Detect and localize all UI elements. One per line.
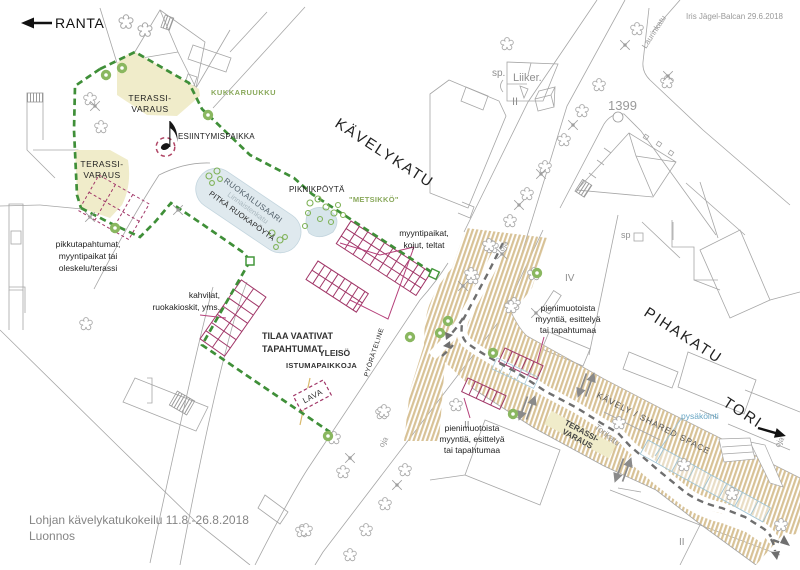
svg-text:KUKKARUUKKU: KUKKARUUKKU — [211, 88, 276, 97]
svg-text:II: II — [679, 537, 685, 548]
svg-text:Lohjan kävelykatukokeilu 11.8.: Lohjan kävelykatukokeilu 11.8.-26.8.2018 — [29, 513, 249, 527]
svg-text:tai tapahtumaa: tai tapahtumaa — [540, 325, 597, 335]
svg-text:myyntipaikat tai: myyntipaikat tai — [59, 251, 118, 261]
svg-text:1399: 1399 — [608, 98, 637, 113]
svg-text:ISTUMAPAIKKOJA: ISTUMAPAIKKOJA — [286, 361, 357, 370]
svg-text:tai tapahtumaa: tai tapahtumaa — [444, 445, 501, 455]
svg-text:pienimuotoista: pienimuotoista — [541, 303, 596, 313]
svg-text:myyntiä, esittelyä: myyntiä, esittelyä — [535, 314, 600, 324]
svg-text:TILAA VAATIVAT: TILAA VAATIVAT — [262, 331, 333, 341]
svg-text:YLEISÖ: YLEISÖ — [319, 348, 351, 358]
svg-text:Iris Jägel-Balcan 29.6.2018: Iris Jägel-Balcan 29.6.2018 — [686, 12, 784, 21]
svg-text:sp: sp — [621, 230, 631, 240]
svg-text:VARAUS: VARAUS — [83, 170, 120, 180]
svg-text:kojut, teltat: kojut, teltat — [403, 240, 445, 250]
svg-text:Liiker.: Liiker. — [513, 72, 542, 84]
svg-text:pysäköinti: pysäköinti — [681, 411, 719, 421]
svg-text:kahvilat,: kahvilat, — [189, 290, 220, 300]
svg-text:"METSIKKÖ": "METSIKKÖ" — [349, 195, 399, 204]
svg-text:TERASSI-: TERASSI- — [80, 159, 123, 169]
svg-text:pienimuotoista: pienimuotoista — [445, 423, 500, 433]
svg-text:pikkutapahtumat,: pikkutapahtumat, — [56, 239, 121, 249]
svg-text:ESIINTYMISPAIKKA: ESIINTYMISPAIKKA — [178, 132, 255, 141]
svg-text:PIKNIKPÖYTÄ: PIKNIKPÖYTÄ — [289, 185, 345, 194]
svg-text:sp.: sp. — [492, 68, 505, 79]
svg-text:VARAUS: VARAUS — [131, 104, 168, 114]
svg-text:oleskelu/terassi: oleskelu/terassi — [59, 263, 118, 273]
svg-text:IV: IV — [565, 273, 575, 284]
svg-text:ruokakioskit, yms.: ruokakioskit, yms. — [152, 302, 220, 312]
svg-text:TAPAHTUMAT: TAPAHTUMAT — [262, 344, 323, 354]
svg-text:myyntipaikat,: myyntipaikat, — [399, 228, 449, 238]
svg-text:RANTA: RANTA — [55, 15, 104, 31]
svg-text:Luonnos: Luonnos — [29, 529, 75, 543]
svg-text:II: II — [512, 96, 518, 108]
svg-text:TERASSI-: TERASSI- — [128, 93, 171, 103]
svg-text:myyntiä, esittelyä: myyntiä, esittelyä — [439, 434, 504, 444]
